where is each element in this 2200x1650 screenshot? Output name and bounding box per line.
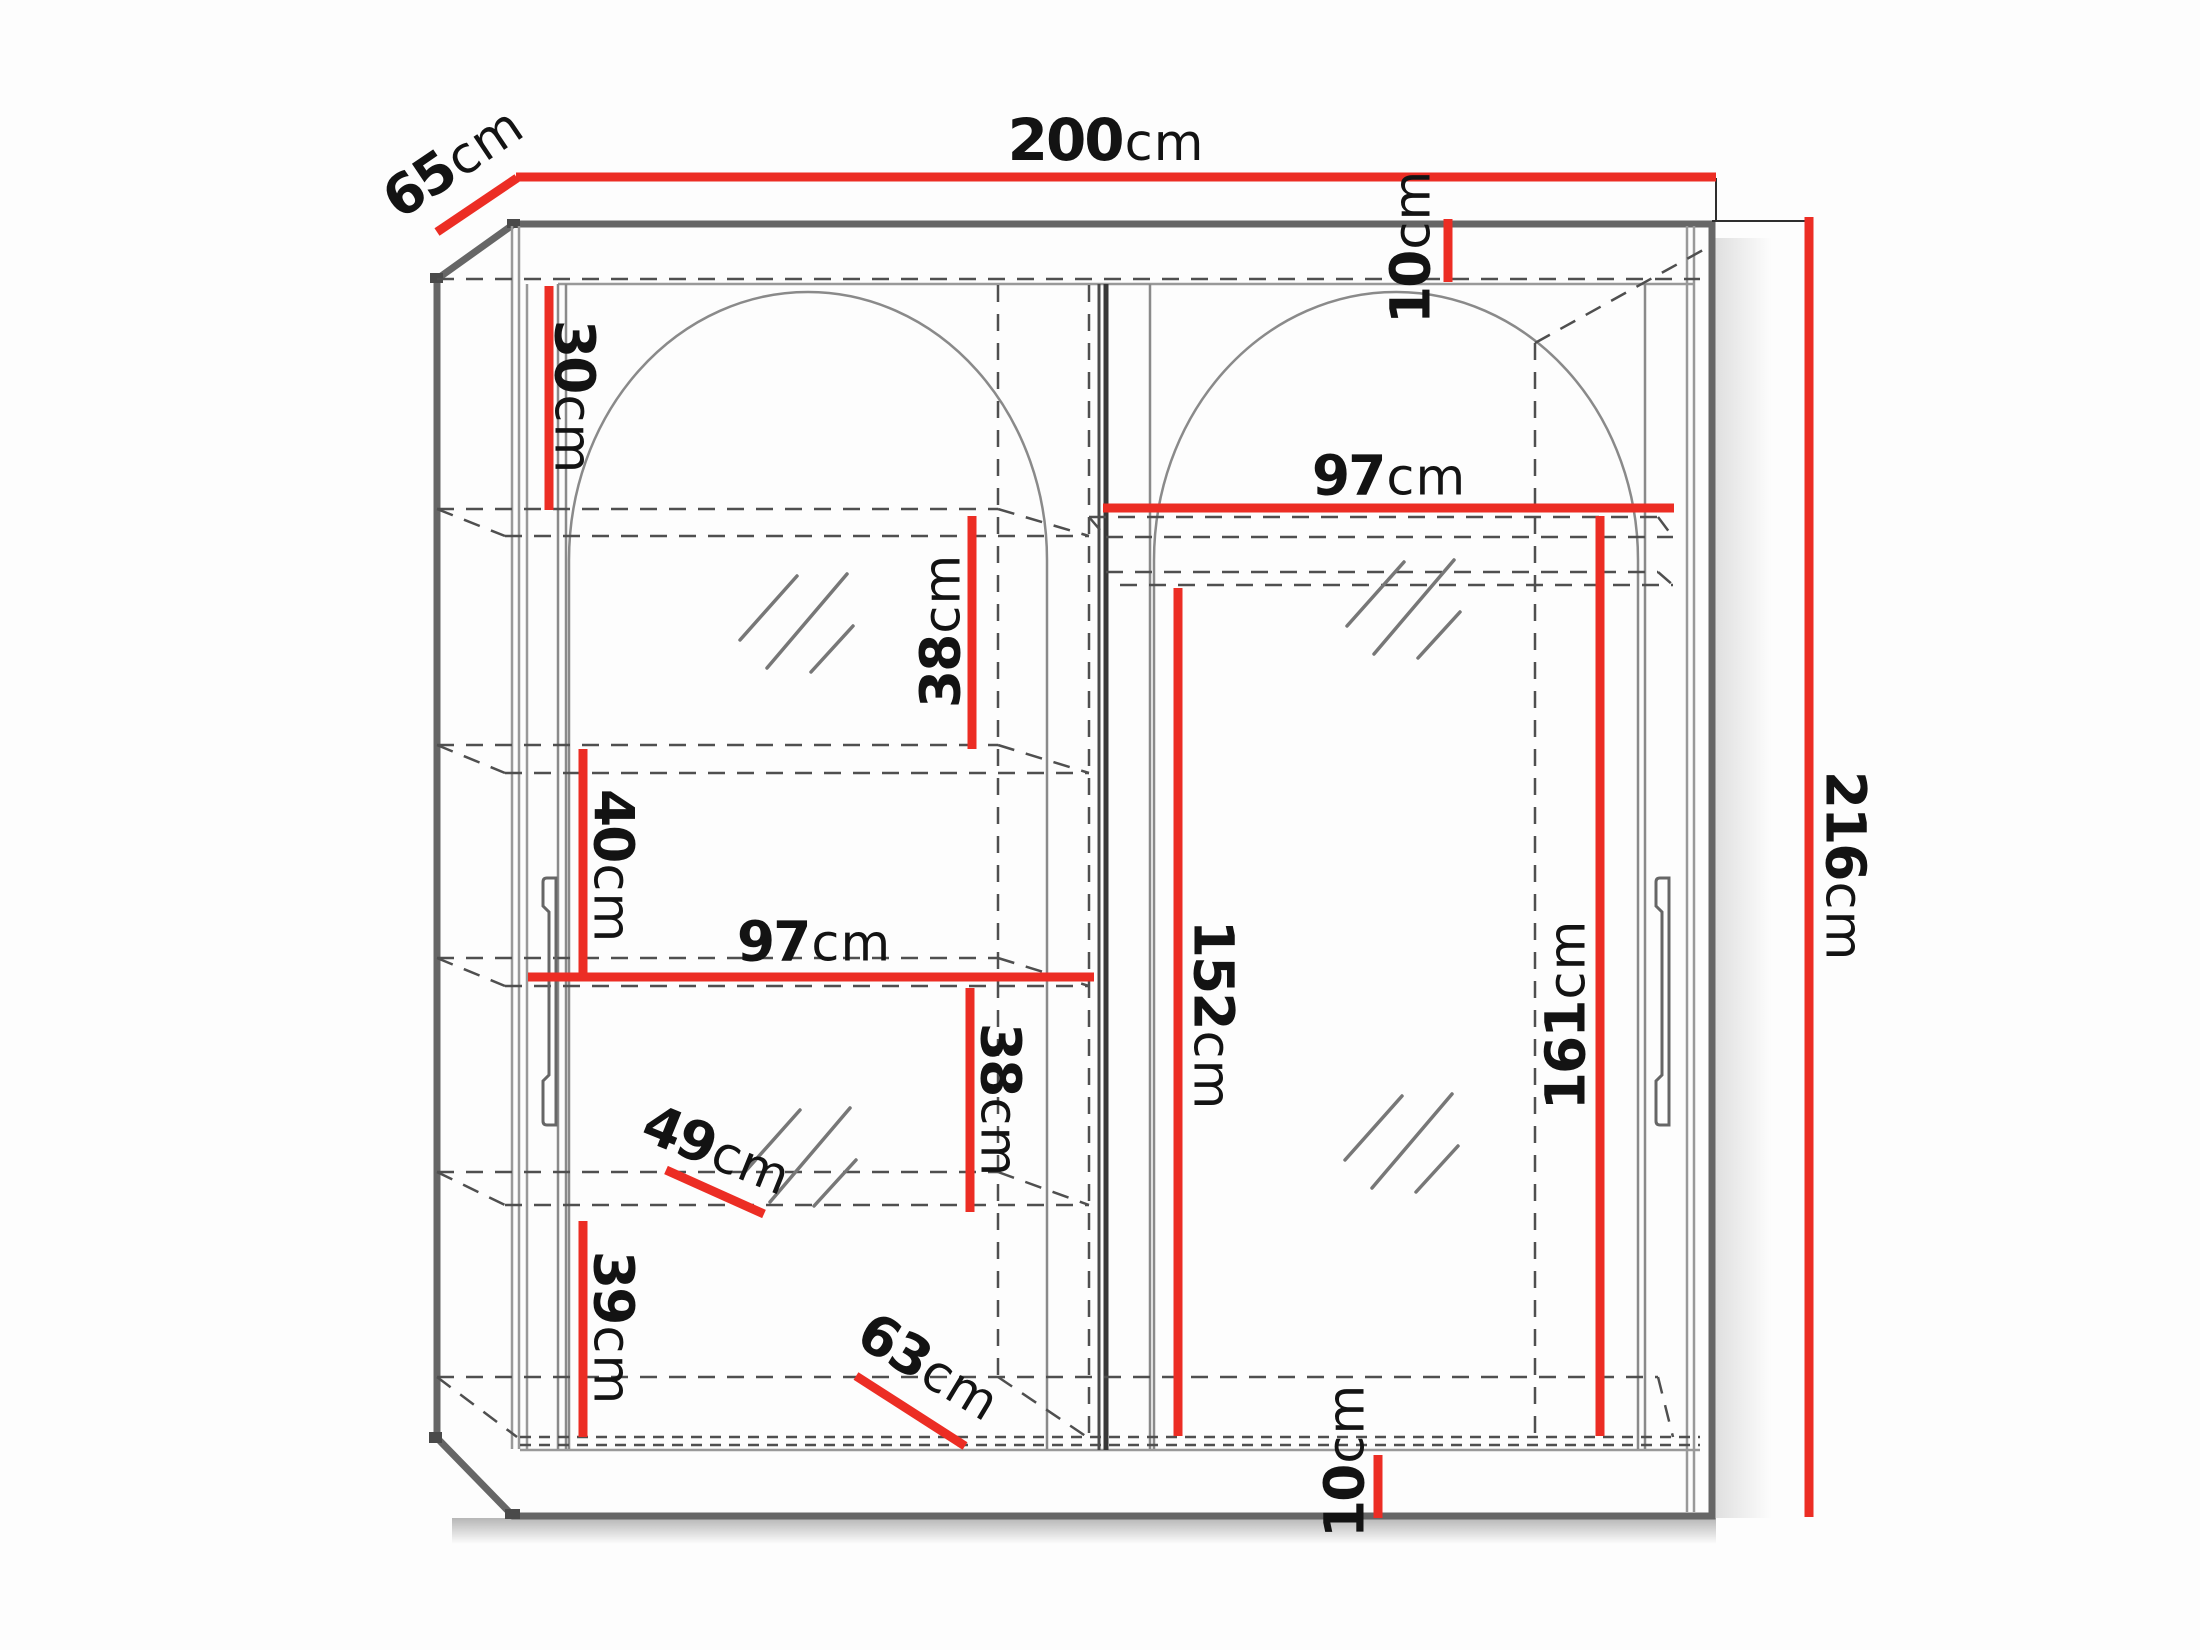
wardrobe-dimension-diagram: 200cm 65cm 216cm 10cm 30cm 38cm 40cm 97c… [0,0,2200,1650]
left-door-handle [543,878,556,1125]
dim-right-section-height-value: 161 [1534,1001,1598,1110]
dim-left-shelf-gap-bottom-unit: cm [582,1325,641,1405]
right-door-handle [1656,878,1669,1125]
dim-overall-width-value: 200 [1008,106,1123,174]
glint-left-upper [740,574,853,672]
dim-overall-width-unit: cm [1125,114,1205,173]
glint-right-upper [1347,560,1460,658]
floor-shadow [452,238,1772,1544]
dim-base-height-value: 10 [1313,1466,1377,1539]
dim-hanging-clearance-value: 152 [1182,920,1246,1029]
dim-base-height-unit: cm [1318,1384,1377,1464]
dim-left-shelf-gap-middle-value: 40 [582,789,646,862]
dim-overall-height: 216cm [1818,771,1873,962]
dim-overall-width: 200cm [1008,111,1205,169]
dim-right-section-width-unit: cm [1386,449,1466,508]
dim-top-panel-offset-value: 10 [1379,252,1443,325]
glint-right-lower [1345,1094,1458,1192]
corner-nubs [429,219,520,1519]
center-divider [1099,284,1106,1450]
dim-left-section-width-unit: cm [811,915,891,974]
dim-left-shelf-gap-bottom-value: 39 [582,1251,646,1324]
dim-left-shelf-gap-lower: 38cm [973,1023,1028,1177]
dim-left-shelf-gap-lower-unit: cm [969,1097,1028,1177]
dim-top-panel-offset-unit: cm [1384,170,1443,250]
dim-left-shelf-gap-middle: 40cm [586,789,641,943]
dim-left-gap-top-shelf: 30cm [547,320,602,474]
dim-overall-height-value: 216 [1814,771,1878,880]
dim-hanging-clearance: 152cm [1186,920,1241,1111]
dim-top-panel-offset: 10cm [1384,170,1439,324]
dim-hanging-clearance-unit: cm [1182,1031,1241,1111]
dim-left-section-width-value: 97 [737,910,810,974]
dim-right-section-height-unit: cm [1539,920,1598,1000]
dim-base-height: 10cm [1318,1384,1373,1538]
dim-left-gap-top-shelf-value: 30 [543,320,607,393]
dim-left-gap-top-shelf-unit: cm [543,394,602,474]
dim-right-section-width-value: 97 [1312,444,1385,508]
dim-left-shelf-gap-middle-unit: cm [582,863,641,943]
dim-left-shelf-gap-lower-value: 38 [969,1023,1033,1096]
dim-right-section-height: 161cm [1539,920,1594,1111]
dim-left-section-width: 97cm [737,915,891,970]
dim-right-section-width: 97cm [1312,449,1466,504]
dim-left-shelf-gap-upper-value: 38 [909,636,973,709]
dim-left-shelf-gap-bottom: 39cm [586,1251,641,1405]
dimension-extension-lines [1712,178,1809,221]
dim-left-shelf-gap-upper: 38cm [914,554,969,708]
dim-overall-height-unit: cm [1814,882,1873,962]
dim-left-shelf-gap-upper-unit: cm [914,554,973,634]
